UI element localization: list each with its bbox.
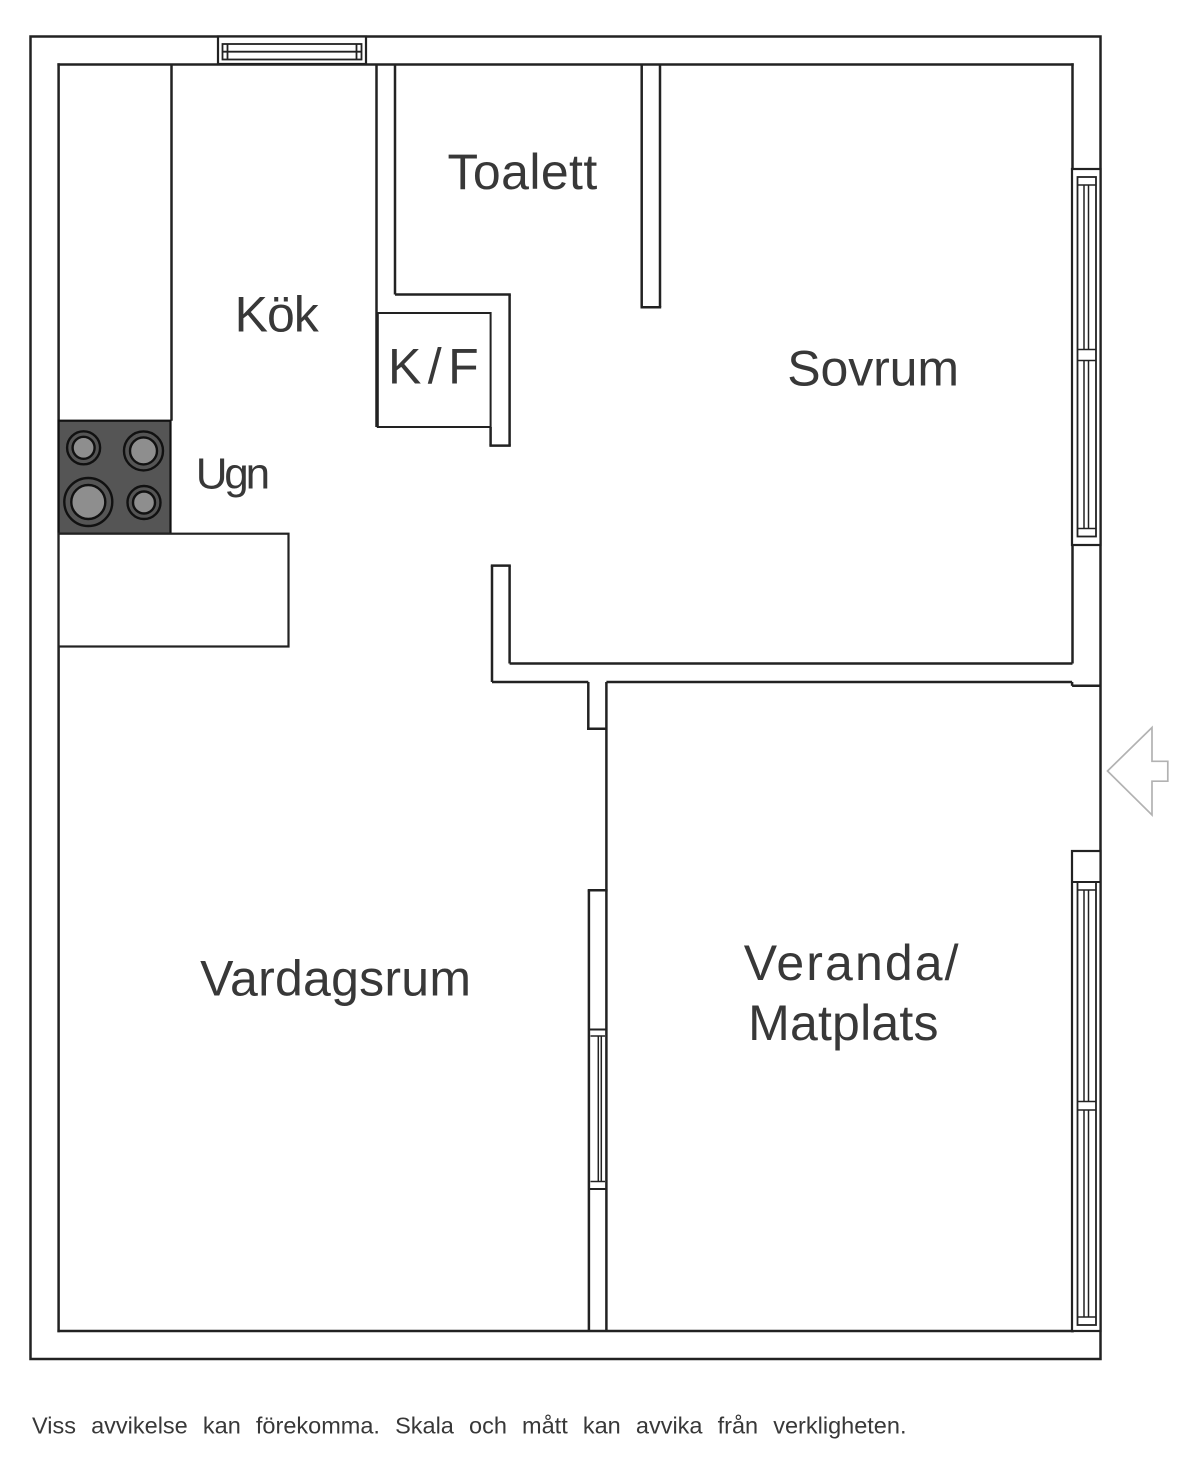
svg-text:Veranda/: Veranda/ (744, 935, 961, 991)
svg-text:Matplats: Matplats (748, 995, 939, 1051)
svg-text:Ugn: Ugn (196, 450, 268, 499)
svg-text:Vardagsrum: Vardagsrum (200, 951, 471, 1007)
svg-text:K/F: K/F (388, 338, 485, 394)
svg-text:Kök: Kök (235, 287, 320, 343)
svg-text:Viss avvikelse kan förekomma.: Viss avvikelse kan förekomma. Skala och … (32, 1413, 906, 1439)
svg-text:Toalett: Toalett (448, 144, 598, 200)
svg-text:Sovrum: Sovrum (787, 340, 959, 396)
